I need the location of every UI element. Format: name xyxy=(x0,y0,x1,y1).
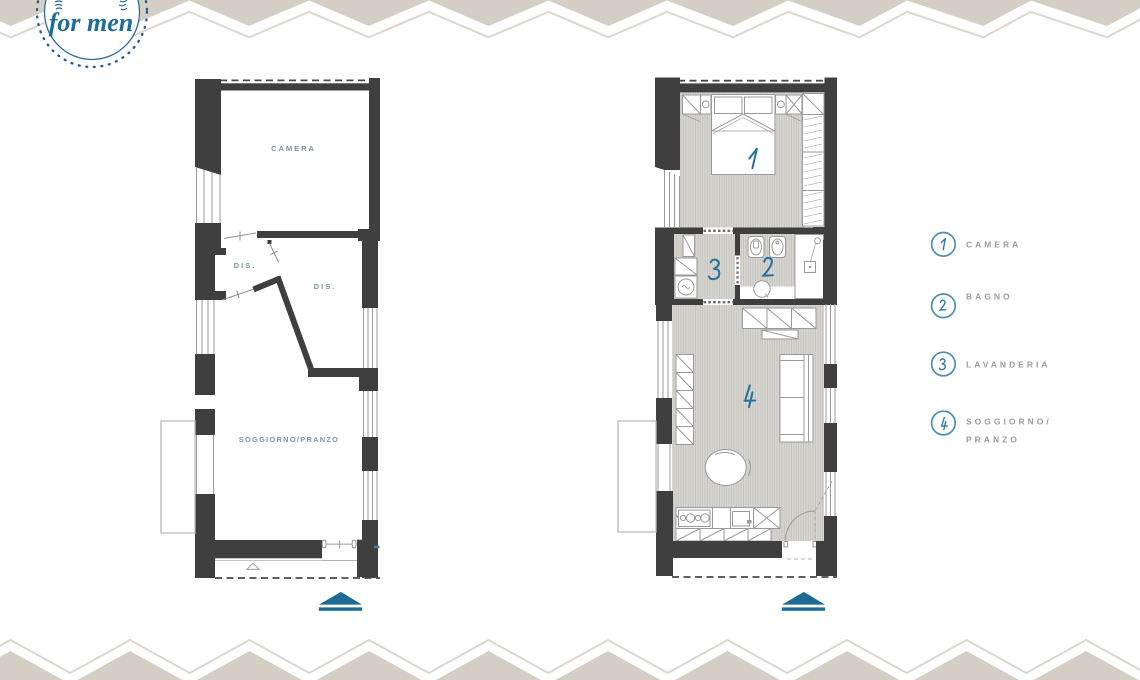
svg-text:LAVANDERIA: LAVANDERIA xyxy=(966,360,1050,370)
svg-text:CAMERA: CAMERA xyxy=(966,240,1021,250)
svg-text:PRANZO: PRANZO xyxy=(966,435,1020,445)
svg-text:CAMERA: CAMERA xyxy=(271,144,316,153)
svg-text:for men: for men xyxy=(49,8,134,37)
svg-text:DIS.: DIS. xyxy=(234,261,257,270)
svg-text:BAGNO: BAGNO xyxy=(966,292,1013,302)
svg-text:DIS.: DIS. xyxy=(314,282,337,291)
svg-text:SOGGIORNO/: SOGGIORNO/ xyxy=(966,417,1052,427)
svg-text:SOGGIORNO/PRANZO: SOGGIORNO/PRANZO xyxy=(239,435,339,444)
